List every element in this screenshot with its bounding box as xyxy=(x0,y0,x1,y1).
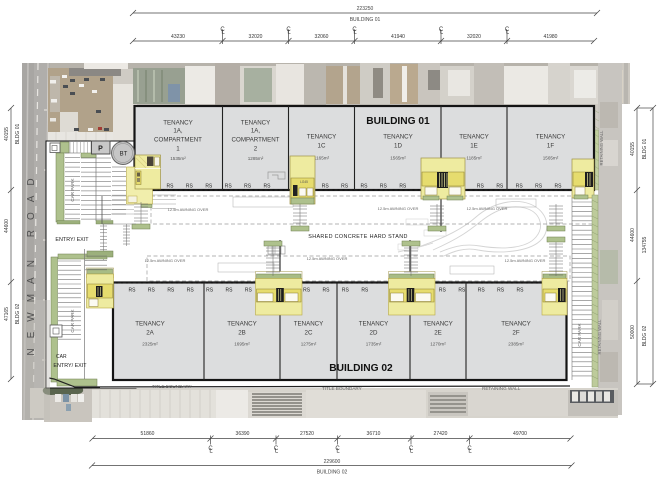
svg-text:40155: 40155 xyxy=(4,127,10,141)
svg-text:1565m²: 1565m² xyxy=(390,156,406,161)
svg-text:RS: RS xyxy=(225,184,233,190)
svg-text:BT: BT xyxy=(120,152,128,158)
svg-text:CAR: CAR xyxy=(56,354,67,360)
svg-text:TENANCY: TENANCY xyxy=(383,134,413,141)
svg-text:2325m²: 2325m² xyxy=(142,342,158,347)
svg-text:BLDG 01: BLDG 01 xyxy=(642,139,648,160)
svg-text:BLDG 02: BLDG 02 xyxy=(642,326,648,347)
svg-text:RS: RS xyxy=(167,184,175,190)
svg-text:RS: RS xyxy=(264,184,272,190)
svg-text:RS: RS xyxy=(226,288,234,294)
svg-text:1735m²: 1735m² xyxy=(366,342,382,347)
svg-text:41980: 41980 xyxy=(544,34,558,40)
svg-text:RS: RS xyxy=(186,184,194,190)
svg-text:1: 1 xyxy=(176,146,180,153)
svg-text:NEWMAN ROAD: NEWMAN ROAD xyxy=(26,168,37,355)
svg-text:2385m²: 2385m² xyxy=(508,342,524,347)
svg-text:P: P xyxy=(98,146,103,153)
svg-text:RS: RS xyxy=(497,288,505,294)
svg-text:COMPARTMENT: COMPARTMENT xyxy=(232,137,280,144)
svg-text:43230: 43230 xyxy=(171,34,185,40)
svg-text:TENANCY: TENANCY xyxy=(536,134,566,141)
svg-text:51860: 51860 xyxy=(141,431,155,437)
svg-text:TENANCY: TENANCY xyxy=(163,120,193,127)
svg-text:2B: 2B xyxy=(238,330,246,337)
svg-text:1F: 1F xyxy=(547,143,554,150)
svg-text:RS: RS xyxy=(244,184,252,190)
svg-text:SHARED CONCRETE HARD STAND: SHARED CONCRETE HARD STAND xyxy=(308,234,407,240)
svg-text:TITLE BOUNDARY: TITLE BOUNDARY xyxy=(152,384,192,389)
svg-text:44600: 44600 xyxy=(4,219,10,233)
svg-text:RETAINING WALL: RETAINING WALL xyxy=(599,130,604,166)
svg-text:RS: RS xyxy=(342,288,350,294)
svg-text:RS: RS xyxy=(517,288,525,294)
svg-text:ENTRY/ EXIT: ENTRY/ EXIT xyxy=(55,237,89,243)
svg-text:1565m²: 1565m² xyxy=(543,156,559,161)
svg-text:1A,: 1A, xyxy=(251,128,261,135)
svg-text:COMPARTMENT: COMPARTMENT xyxy=(154,137,202,144)
svg-text:50000: 50000 xyxy=(630,325,636,339)
svg-text:RS: RS xyxy=(361,184,369,190)
svg-text:2F: 2F xyxy=(512,330,519,337)
svg-text:TENANCY: TENANCY xyxy=(359,321,389,328)
svg-text:BUILDING 01: BUILDING 01 xyxy=(350,17,381,23)
svg-text:36390: 36390 xyxy=(236,431,250,437)
svg-text:1E: 1E xyxy=(470,143,478,150)
svg-text:LG45: LG45 xyxy=(300,180,308,184)
svg-text:TENANCY: TENANCY xyxy=(423,321,453,328)
svg-text:RS: RS xyxy=(458,288,466,294)
svg-text:27520: 27520 xyxy=(300,431,314,437)
svg-text:36710: 36710 xyxy=(367,431,381,437)
svg-text:RS: RS xyxy=(516,184,524,190)
svg-text:47165: 47165 xyxy=(4,307,10,321)
svg-text:2E: 2E xyxy=(434,330,442,337)
svg-text:44600: 44600 xyxy=(630,228,636,242)
svg-text:RS: RS xyxy=(167,288,175,294)
svg-text:12.5m AWNING OVER: 12.5m AWNING OVER xyxy=(307,256,348,261)
svg-text:229600: 229600 xyxy=(324,459,341,465)
svg-text:RETAINING WALL: RETAINING WALL xyxy=(597,319,602,355)
svg-text:TITLE BOUNDARY: TITLE BOUNDARY xyxy=(322,386,362,391)
svg-text:12.5m AWNING OVER: 12.5m AWNING OVER xyxy=(378,206,419,211)
svg-text:RS: RS xyxy=(323,288,331,294)
svg-text:RS: RS xyxy=(439,288,447,294)
svg-text:TENANCY: TENANCY xyxy=(307,134,337,141)
svg-text:RS: RS xyxy=(148,288,156,294)
svg-text:RS: RS xyxy=(496,184,504,190)
svg-text:1535m²: 1535m² xyxy=(170,156,186,161)
svg-text:32020: 32020 xyxy=(467,34,481,40)
svg-text:RS: RS xyxy=(341,184,349,190)
svg-text:RS: RS xyxy=(361,288,369,294)
svg-text:12.5m AWNING OVER: 12.5m AWNING OVER xyxy=(505,258,546,263)
svg-text:RS: RS xyxy=(187,288,195,294)
svg-text:1285m²: 1285m² xyxy=(248,156,264,161)
svg-text:40155: 40155 xyxy=(630,142,636,156)
svg-text:27420: 27420 xyxy=(434,431,448,437)
svg-text:RS: RS xyxy=(245,288,253,294)
svg-text:32060: 32060 xyxy=(315,34,329,40)
svg-text:1165m²: 1165m² xyxy=(314,156,330,161)
svg-text:TENANCY: TENANCY xyxy=(294,321,324,328)
svg-text:1695m²: 1695m² xyxy=(234,342,250,347)
svg-text:1185m²: 1185m² xyxy=(466,156,482,161)
svg-text:2D: 2D xyxy=(370,330,378,337)
svg-text:BLDG 01: BLDG 01 xyxy=(15,124,21,145)
svg-text:BUILDING 02: BUILDING 02 xyxy=(329,363,393,374)
svg-text:TENANCY: TENANCY xyxy=(135,321,165,328)
svg-text:RS: RS xyxy=(477,184,485,190)
svg-text:41940: 41940 xyxy=(391,34,405,40)
svg-text:TENANCY: TENANCY xyxy=(501,321,531,328)
svg-text:2C: 2C xyxy=(305,330,313,337)
svg-text:223250: 223250 xyxy=(357,6,374,12)
svg-text:CAR PARK: CAR PARK xyxy=(577,322,582,346)
svg-text:RS: RS xyxy=(478,288,486,294)
svg-text:RS: RS xyxy=(322,184,330,190)
svg-text:TENANCY: TENANCY xyxy=(227,321,257,328)
svg-text:RETAINING WALL: RETAINING WALL xyxy=(482,386,521,391)
svg-text:49700: 49700 xyxy=(513,431,527,437)
svg-text:12.5m AWNING OVER: 12.5m AWNING OVER xyxy=(145,258,186,263)
svg-text:RS: RS xyxy=(555,184,563,190)
svg-text:1C: 1C xyxy=(318,143,326,150)
svg-text:RS: RS xyxy=(303,288,311,294)
svg-text:134755: 134755 xyxy=(642,236,648,253)
svg-text:RS: RS xyxy=(399,184,407,190)
svg-text:BLDG 02: BLDG 02 xyxy=(15,304,21,325)
svg-text:ENTRY/ EXIT: ENTRY/ EXIT xyxy=(53,363,87,369)
svg-text:BUILDING 02: BUILDING 02 xyxy=(317,470,348,476)
svg-text:1D: 1D xyxy=(394,143,402,150)
svg-text:TENANCY: TENANCY xyxy=(459,134,489,141)
svg-text:1275m²: 1275m² xyxy=(301,342,317,347)
svg-text:CAR PARK: CAR PARK xyxy=(70,177,75,201)
svg-text:BUILDING 01: BUILDING 01 xyxy=(366,116,430,127)
svg-text:TENANCY: TENANCY xyxy=(241,120,271,127)
svg-text:2A: 2A xyxy=(146,330,154,337)
svg-text:RS: RS xyxy=(380,184,388,190)
svg-text:2: 2 xyxy=(254,146,258,153)
svg-text:CAR PARK: CAR PARK xyxy=(70,308,75,332)
svg-text:12.5m AWNING OVER: 12.5m AWNING OVER xyxy=(168,207,209,212)
svg-text:32020: 32020 xyxy=(249,34,263,40)
svg-text:1A,: 1A, xyxy=(173,128,183,135)
svg-text:1270m²: 1270m² xyxy=(430,342,446,347)
svg-text:RS: RS xyxy=(206,288,214,294)
svg-text:RS: RS xyxy=(535,184,543,190)
svg-text:RS: RS xyxy=(129,288,137,294)
svg-text:RS: RS xyxy=(205,184,213,190)
